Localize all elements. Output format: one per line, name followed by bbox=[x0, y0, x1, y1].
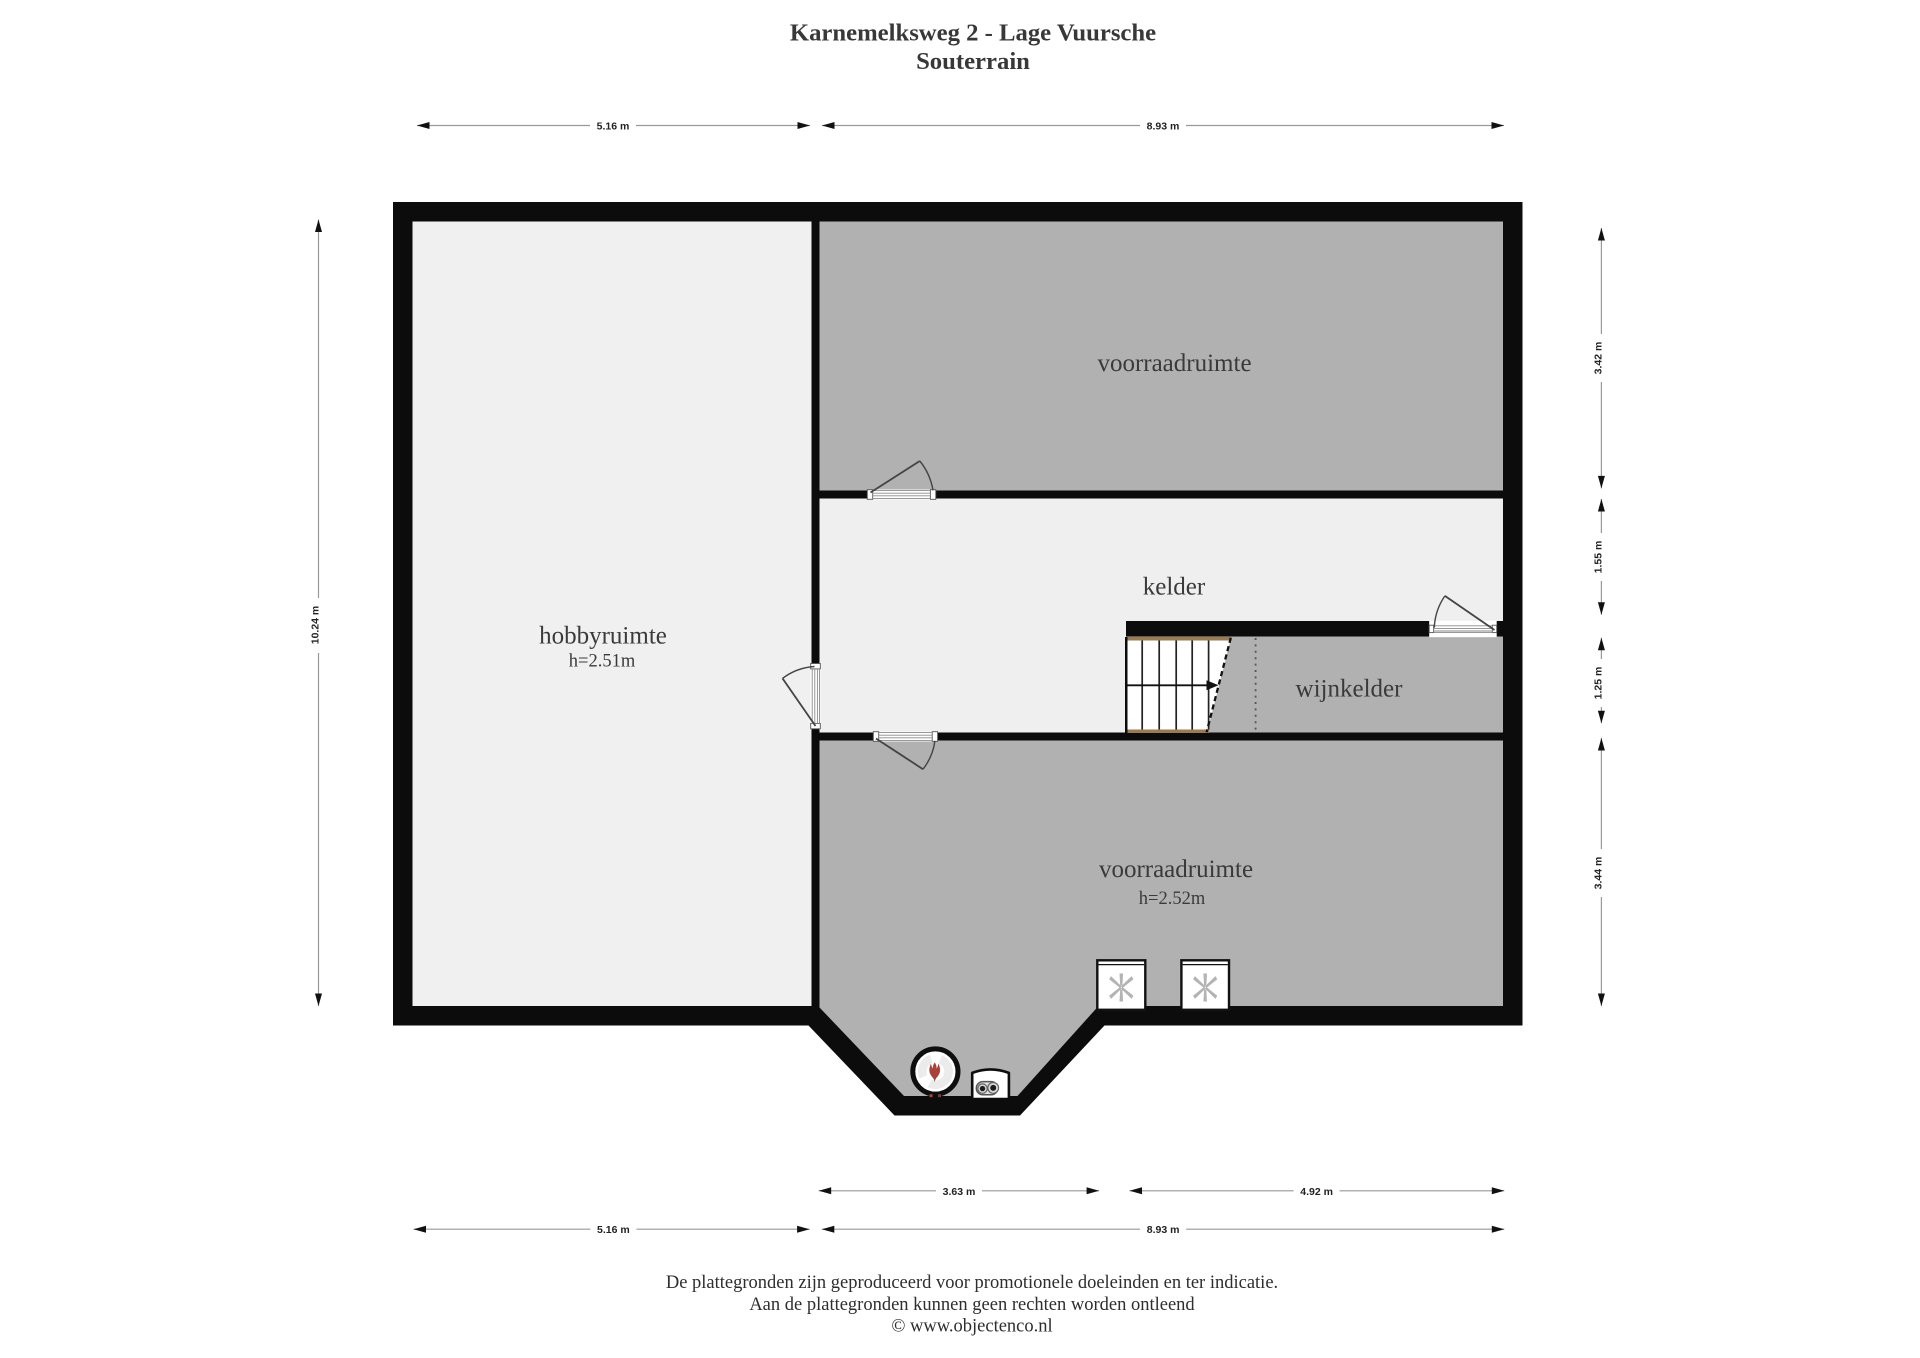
svg-text:hobbyruimte: hobbyruimte bbox=[539, 622, 667, 649]
svg-text:Karnemelksweg 2 - Lage Vuursch: Karnemelksweg 2 - Lage Vuursche bbox=[790, 20, 1156, 47]
svg-text:voorraadruimte: voorraadruimte bbox=[1097, 350, 1251, 377]
svg-text:© www.objectenco.nl: © www.objectenco.nl bbox=[891, 1317, 1052, 1337]
svg-text:3.42 m: 3.42 m bbox=[1592, 342, 1604, 375]
svg-text:5.16 m: 5.16 m bbox=[597, 121, 630, 133]
svg-text:5.16 m: 5.16 m bbox=[597, 1224, 630, 1236]
svg-text:1.25 m: 1.25 m bbox=[1592, 667, 1604, 700]
svg-text:4.92 m: 4.92 m bbox=[1300, 1186, 1333, 1198]
svg-text:Aan de plattegronden kunnen ge: Aan de plattegronden kunnen geen rechten… bbox=[749, 1295, 1195, 1315]
svg-text:kelder: kelder bbox=[1143, 574, 1206, 601]
svg-text:3.63 m: 3.63 m bbox=[943, 1186, 976, 1198]
svg-text:De plattegronden zijn geproduc: De plattegronden zijn geproduceerd voor … bbox=[666, 1273, 1278, 1293]
svg-text:h=2.51m: h=2.51m bbox=[569, 651, 636, 671]
svg-text:8.93 m: 8.93 m bbox=[1147, 1224, 1180, 1236]
svg-text:10.24 m: 10.24 m bbox=[310, 606, 322, 645]
svg-text:voorraadruimte: voorraadruimte bbox=[1099, 856, 1253, 883]
svg-text:wijnkelder: wijnkelder bbox=[1296, 676, 1404, 703]
svg-text:8.93 m: 8.93 m bbox=[1147, 121, 1180, 133]
svg-text:1.55 m: 1.55 m bbox=[1592, 541, 1604, 574]
svg-text:Souterrain: Souterrain bbox=[916, 48, 1030, 75]
svg-text:h=2.52m: h=2.52m bbox=[1139, 889, 1206, 909]
svg-text:3.44 m: 3.44 m bbox=[1592, 857, 1604, 890]
